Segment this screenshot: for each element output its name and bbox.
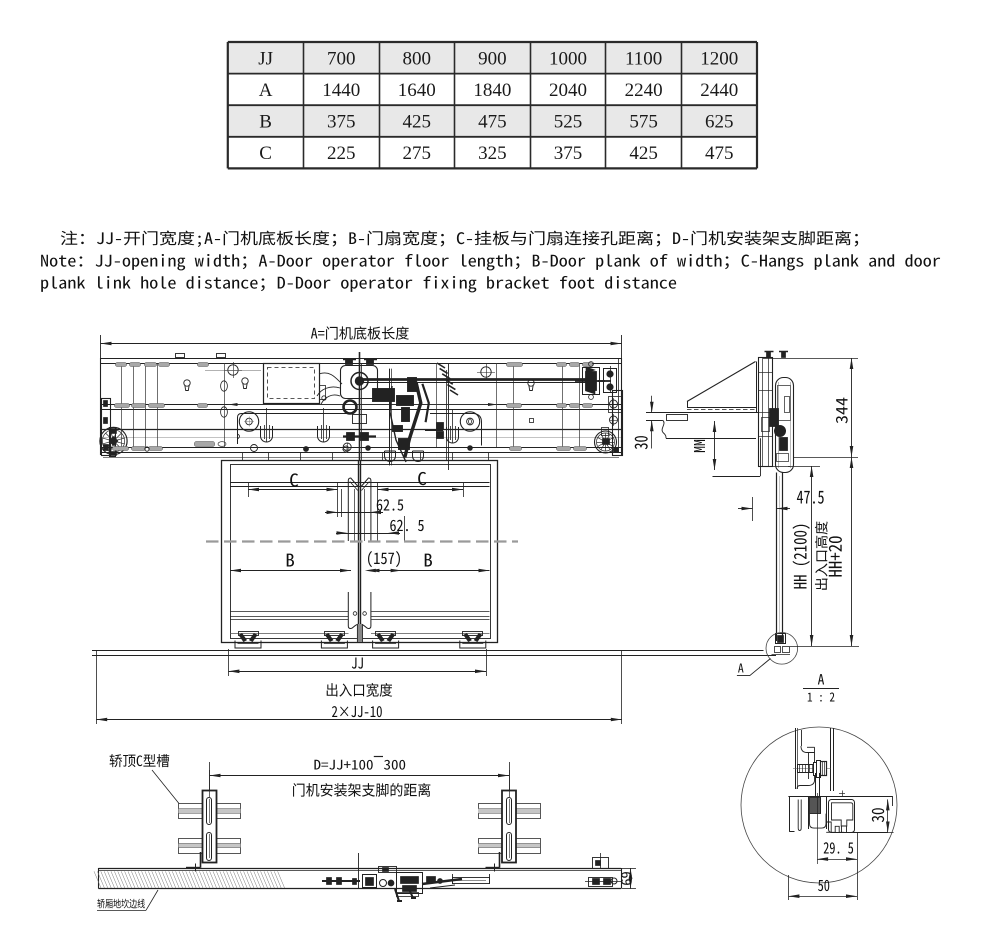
svg-text:475: 475: [705, 143, 734, 164]
svg-text:425: 425: [403, 112, 432, 133]
svg-text:2240: 2240: [625, 80, 663, 101]
svg-text:2040: 2040: [549, 80, 587, 101]
svg-text:1440: 1440: [322, 80, 360, 101]
svg-text:375: 375: [554, 143, 583, 164]
svg-text:C: C: [259, 143, 272, 164]
svg-text:425: 425: [629, 143, 658, 164]
svg-text:800: 800: [403, 48, 432, 69]
svg-text:2440: 2440: [700, 80, 738, 101]
svg-text:A: A: [259, 80, 273, 101]
svg-text:1200: 1200: [700, 48, 738, 69]
svg-text:900: 900: [478, 48, 507, 69]
svg-text:B: B: [259, 112, 272, 133]
svg-text:1000: 1000: [549, 48, 587, 69]
svg-text:700: 700: [327, 48, 356, 69]
svg-text:475: 475: [478, 112, 507, 133]
svg-text:1840: 1840: [473, 80, 511, 101]
svg-text:1100: 1100: [625, 48, 662, 69]
svg-text:225: 225: [327, 143, 356, 164]
svg-text:525: 525: [554, 112, 583, 133]
svg-text:325: 325: [478, 143, 507, 164]
svg-text:375: 375: [327, 112, 356, 133]
svg-text:1640: 1640: [398, 80, 436, 101]
svg-text:JJ: JJ: [258, 48, 273, 69]
svg-text:575: 575: [629, 112, 658, 133]
svg-text:625: 625: [705, 112, 734, 133]
svg-text:275: 275: [403, 143, 432, 164]
